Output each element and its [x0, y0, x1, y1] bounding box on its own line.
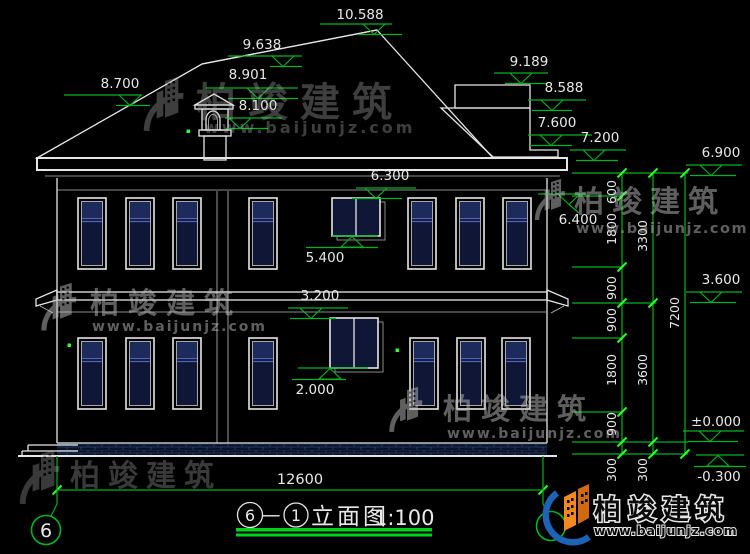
svg-text:300: 300	[635, 458, 650, 482]
window	[173, 198, 201, 269]
svg-text:9.189: 9.189	[510, 54, 549, 70]
svg-text:8.700: 8.700	[101, 76, 140, 92]
svg-text:900: 900	[604, 308, 619, 332]
svg-text:6: 6	[40, 520, 52, 542]
svg-text:www.baijunjz.com: www.baijunjz.com	[576, 221, 748, 237]
window	[503, 198, 531, 269]
svg-text:www.baijunjz.com: www.baijunjz.com	[447, 426, 622, 442]
svg-text:2.000: 2.000	[296, 382, 335, 398]
plinth	[57, 443, 547, 455]
svg-text:12600: 12600	[277, 472, 323, 488]
svg-text:7.200: 7.200	[581, 130, 620, 146]
svg-text:6.900: 6.900	[702, 145, 741, 161]
svg-text:www.baijunjz.com: www.baijunjz.com	[92, 319, 267, 335]
window	[173, 338, 201, 409]
svg-text:-0.300: -0.300	[697, 469, 741, 485]
stair-window-lower	[330, 318, 383, 372]
stair-window-upper	[332, 198, 385, 240]
elevation-drawing: 10.588 9.638 8.901 8.700 8.100 9.189 8.5…	[0, 0, 750, 554]
svg-text:1800: 1800	[604, 354, 619, 386]
logo-url: www.baijunjz.com	[594, 523, 738, 538]
window	[78, 338, 106, 409]
title-underline	[236, 534, 432, 537]
drawing-title: 6 — 1 立面图 1:100	[236, 503, 435, 537]
window	[408, 198, 436, 269]
window	[126, 338, 154, 409]
window	[78, 198, 106, 269]
svg-text:1: 1	[291, 506, 301, 525]
svg-text:10.588: 10.588	[336, 7, 383, 23]
svg-text:1:100: 1:100	[374, 506, 435, 530]
svg-text:柏竣建筑: 柏竣建筑	[70, 459, 222, 494]
svg-text:5.400: 5.400	[306, 250, 345, 266]
svg-text:300: 300	[604, 458, 619, 482]
window	[249, 338, 277, 409]
svg-text:3600: 3600	[635, 354, 650, 386]
svg-text:900: 900	[604, 276, 619, 300]
svg-text:7200: 7200	[667, 297, 682, 329]
svg-text:3.600: 3.600	[702, 272, 741, 288]
svg-text:柏竣建筑: 柏竣建筑	[443, 392, 595, 426]
svg-text:8.588: 8.588	[545, 80, 584, 96]
window	[249, 198, 277, 269]
svg-text:7.600: 7.600	[538, 115, 577, 131]
svg-text:9.638: 9.638	[243, 37, 282, 53]
svg-text:6: 6	[245, 506, 255, 525]
svg-text:www.baijunjz.com: www.baijunjz.com	[204, 118, 415, 137]
window	[456, 198, 484, 269]
svg-text:柏竣建筑: 柏竣建筑	[574, 185, 726, 220]
window	[126, 198, 154, 269]
svg-text:6.300: 6.300	[371, 168, 410, 184]
svg-text:柏竣建筑: 柏竣建筑	[90, 286, 242, 320]
logo-brand: 柏竣建筑	[594, 494, 730, 526]
title-underline	[236, 528, 432, 532]
svg-text:3.200: 3.200	[301, 288, 340, 304]
svg-text:±0.000: ±0.000	[691, 414, 741, 430]
svg-text:—: —	[262, 504, 281, 526]
